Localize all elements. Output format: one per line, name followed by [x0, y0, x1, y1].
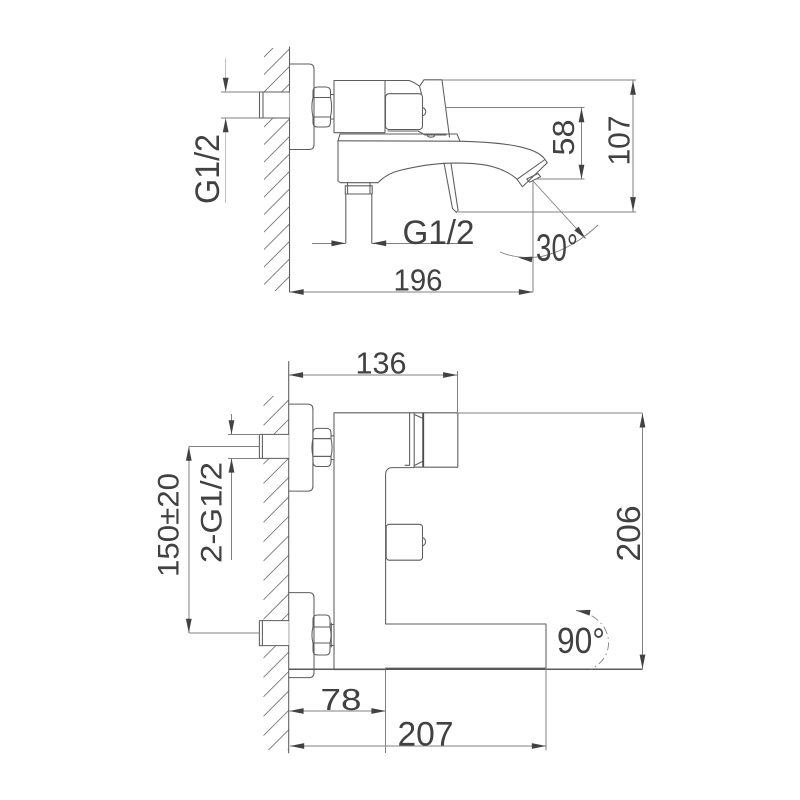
svg-text:2-G1/2: 2-G1/2 [196, 462, 229, 563]
svg-text:206: 206 [610, 506, 647, 562]
svg-text:90°: 90° [557, 620, 605, 661]
svg-text:136: 136 [356, 346, 407, 381]
svg-text:G1/2: G1/2 [403, 214, 475, 252]
svg-text:196: 196 [394, 263, 443, 298]
svg-text:78: 78 [321, 682, 362, 717]
svg-text:150±20: 150±20 [153, 473, 186, 577]
svg-text:G1/2: G1/2 [189, 134, 227, 204]
svg-text:107: 107 [602, 116, 637, 166]
svg-text:30°: 30° [536, 228, 578, 270]
svg-text:207: 207 [398, 716, 454, 754]
svg-text:58: 58 [546, 120, 581, 156]
